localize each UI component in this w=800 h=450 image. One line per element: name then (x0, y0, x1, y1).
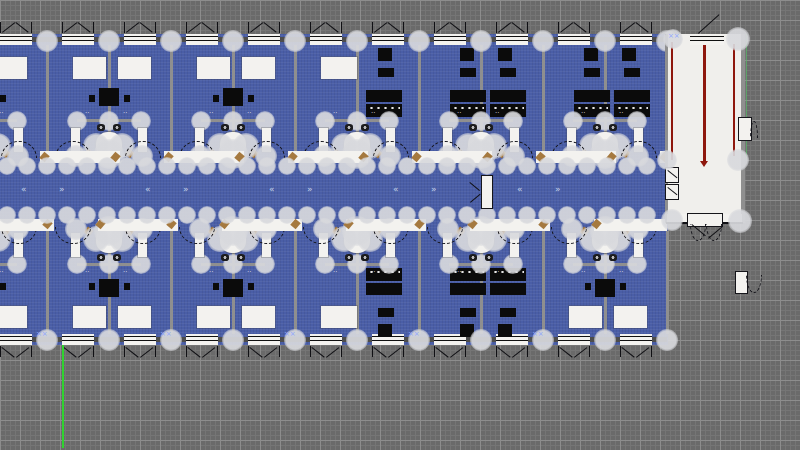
door-leaf-line (497, 347, 510, 358)
chair (0, 95, 6, 102)
unit-mark: ·· (85, 110, 105, 118)
door-leaf-line (622, 22, 635, 33)
unit-mark: ·· (581, 269, 601, 277)
path-node (518, 157, 536, 175)
flow-arrow-right: » (183, 185, 203, 193)
unit-mark: ·· (0, 110, 19, 118)
wall-node (98, 30, 120, 52)
door-leaf-line (140, 347, 153, 358)
chair (89, 283, 95, 290)
sink (97, 254, 105, 261)
door-swing-arc (179, 227, 215, 244)
door-leaf-line (326, 347, 339, 358)
bed (569, 306, 602, 328)
wing-green-edge (746, 34, 747, 160)
wall-node (160, 30, 182, 52)
chair (585, 283, 591, 290)
node-mark: ×× (668, 33, 688, 41)
interior-wall (418, 231, 421, 334)
wall-node (222, 30, 244, 52)
floor-plan-layer: ········································… (0, 0, 800, 450)
y-axis-guide (62, 345, 64, 448)
path-node (18, 157, 36, 175)
door-swing-arc (621, 141, 657, 158)
path-node (98, 206, 116, 224)
door-leaf-line (436, 22, 449, 33)
door-swing-line (698, 14, 719, 33)
path-node (78, 157, 96, 175)
furniture-black (500, 308, 516, 317)
path-node (558, 206, 576, 224)
door-leaf-line (77, 22, 90, 33)
wall-node (656, 329, 678, 351)
path-node (498, 157, 516, 175)
wall-node (657, 150, 677, 170)
door-mark-tick (155, 346, 156, 357)
door-leaf-line (15, 22, 28, 33)
sink (469, 124, 477, 131)
sink (593, 124, 601, 131)
path-node (118, 157, 136, 175)
furniture-black (378, 308, 394, 317)
wall-node (346, 30, 368, 52)
window (434, 34, 466, 45)
stair-rail (671, 42, 673, 160)
door-leaf-line (498, 22, 511, 33)
door-leaf-line (387, 22, 400, 33)
door-mark-tick (31, 22, 32, 33)
furniture-black (614, 90, 650, 102)
door-leaf-line (635, 22, 648, 33)
door-mark-tick (279, 22, 280, 33)
stair-rail (703, 40, 706, 161)
window (372, 34, 404, 45)
window (620, 34, 652, 45)
unit-mark: ·· (581, 110, 601, 118)
table (99, 88, 119, 106)
chair (0, 283, 6, 290)
unit-mark: ·· (247, 269, 267, 277)
chair (89, 95, 95, 102)
door-leaf-line (264, 347, 277, 358)
window (558, 34, 590, 45)
node-circle (439, 254, 459, 274)
table (99, 279, 119, 297)
path-node (538, 157, 556, 175)
door-mark-tick (403, 22, 404, 33)
door-mark-tick (589, 22, 590, 33)
door-leaf-line (188, 22, 201, 33)
door-leaf-line (126, 22, 139, 33)
sink (113, 254, 121, 261)
path-node (198, 206, 216, 224)
path-node (158, 206, 176, 224)
door-leaf-line (621, 347, 634, 358)
path-node (518, 206, 536, 224)
path-node (398, 157, 416, 175)
door-leaf-line (511, 22, 524, 33)
window (248, 334, 280, 345)
path-node (158, 157, 176, 175)
furniture-black (622, 48, 636, 61)
path-node (438, 157, 456, 175)
chair (213, 283, 219, 290)
unit-mark: ·· (209, 269, 229, 277)
flow-arrow-left: « (269, 185, 289, 193)
path-node (418, 157, 436, 175)
interior-wall (542, 231, 545, 334)
window (0, 34, 32, 45)
flow-arrow-left: « (145, 185, 165, 193)
window (124, 34, 156, 45)
door-mark-tick (93, 346, 94, 357)
path-node (438, 206, 456, 224)
unit-mark: ·· (123, 110, 143, 118)
flow-arrow-right: » (307, 185, 327, 193)
door-leaf-line (201, 22, 214, 33)
door-leaf-line (574, 347, 587, 358)
wall-node (470, 30, 492, 52)
sink (609, 124, 617, 131)
interior-wall (294, 231, 297, 334)
path-node (218, 206, 236, 224)
door-mark-tick (341, 22, 342, 33)
node-circle (67, 254, 87, 274)
wall-node (594, 329, 616, 351)
unit-mark: ·· (619, 269, 639, 277)
path-node (378, 206, 396, 224)
stair-arrow-tip (700, 161, 708, 167)
door-swing-arc (125, 141, 161, 158)
unit-mark: ·· (457, 269, 477, 277)
path-node (198, 157, 216, 175)
furniture-black (460, 48, 474, 61)
window (248, 34, 280, 45)
furniture-black (366, 90, 402, 102)
door-leaf-line (64, 22, 77, 33)
flow-arrow-right: » (431, 185, 451, 193)
furniture-black (584, 48, 598, 61)
unit-mark: ·· (85, 269, 105, 277)
chair (248, 283, 254, 290)
path-node (118, 206, 136, 224)
sink (221, 124, 229, 131)
interior-wall (294, 45, 297, 151)
path-node (278, 157, 296, 175)
door-swing-arc (303, 227, 339, 244)
unit-mark: ·· (333, 269, 353, 277)
door-mark-tick (589, 346, 590, 357)
door-leaf-line (16, 347, 29, 358)
interior-wall (542, 45, 545, 151)
flow-arrow-right: » (555, 185, 575, 193)
window (496, 34, 528, 45)
path-node (58, 157, 76, 175)
chair (124, 283, 130, 290)
bed (73, 306, 106, 328)
side-door-swing (750, 121, 758, 138)
sink (361, 254, 369, 261)
sink (237, 124, 245, 131)
sink (97, 124, 105, 131)
door-mark-tick (93, 22, 94, 33)
corridor-door (482, 176, 492, 208)
node-mark: ×× (36, 331, 56, 339)
wall-node (470, 329, 492, 351)
door-leaf-line (636, 347, 649, 358)
furniture-black (490, 90, 526, 102)
door-mark-tick (651, 22, 652, 33)
unit-mark: ·· (495, 110, 515, 118)
interior-wall (46, 231, 49, 334)
window (558, 334, 590, 345)
node-mark: ×× (160, 331, 180, 339)
unit-mark: ·· (247, 110, 267, 118)
interior-wall (46, 45, 49, 151)
path-node (238, 206, 256, 224)
wall-node (222, 329, 244, 351)
window (186, 34, 218, 45)
bed (614, 306, 647, 328)
wall-node (727, 149, 749, 171)
path-node (578, 206, 596, 224)
path-node (618, 206, 636, 224)
door-leaf-line (512, 347, 525, 358)
wall-node (408, 30, 430, 52)
chair (248, 95, 254, 102)
door-mark-tick (403, 346, 404, 357)
path-node (78, 206, 96, 224)
app-window: { "app": { "name": "floor-plan-cad-viewp… (0, 0, 800, 450)
unit-mark: ·· (123, 269, 143, 277)
path-node (258, 157, 276, 175)
sink (609, 254, 617, 261)
path-node (358, 157, 376, 175)
furniture-black (584, 68, 600, 77)
bed (73, 57, 106, 79)
path-node (138, 157, 156, 175)
door-leaf-line (325, 22, 338, 33)
door-swing-arc (427, 227, 463, 244)
door-mark-tick (527, 346, 528, 357)
cad-canvas[interactable]: ········································… (0, 0, 800, 450)
path-node (458, 157, 476, 175)
door-swing-arc (551, 227, 587, 244)
door-mark-tick (217, 22, 218, 33)
node-mark: ×× (284, 331, 304, 339)
wall-node (346, 329, 368, 351)
bed (197, 57, 230, 79)
door-leaf-line (1, 347, 14, 358)
door-leaf-line (312, 22, 325, 33)
door-leaf-line (78, 347, 91, 358)
unit-mark: ·· (457, 110, 477, 118)
furniture-black (624, 68, 640, 77)
door-leaf-line (573, 22, 586, 33)
sink (485, 254, 493, 261)
bed (118, 306, 151, 328)
door-leaf-line (559, 347, 572, 358)
unit-mark: ·· (371, 269, 391, 277)
interior-wall (418, 45, 421, 151)
flow-arrow-right: » (59, 185, 79, 193)
furniture-black (490, 283, 526, 295)
furniture-black (500, 68, 516, 77)
window (620, 334, 652, 345)
door-mark-tick (155, 22, 156, 33)
sink (221, 254, 229, 261)
path-node (218, 157, 236, 175)
furniture-black (366, 283, 402, 295)
path-node (38, 206, 56, 224)
door-leaf-line (388, 347, 401, 358)
path-node (538, 206, 556, 224)
door-leaf-line (263, 22, 276, 33)
door-leaf-line (374, 22, 387, 33)
door-swing-arc (55, 227, 91, 244)
flow-arrow-left: « (393, 185, 413, 193)
bed (118, 57, 151, 79)
path-node (558, 157, 576, 175)
furniture-black (498, 48, 512, 61)
path-node (298, 206, 316, 224)
node-circle (563, 254, 583, 274)
path-node (178, 206, 196, 224)
wall-node (594, 30, 616, 52)
path-node (458, 206, 476, 224)
door-leaf-line (435, 347, 448, 358)
path-node (278, 206, 296, 224)
door-swing-arc (249, 141, 285, 158)
furniture-black (378, 68, 394, 77)
unit-mark: ·· (619, 110, 639, 118)
wall-node (726, 27, 750, 51)
furniture-black (498, 324, 512, 337)
path-node (98, 157, 116, 175)
node-mark: ×× (408, 331, 428, 339)
path-node (418, 206, 436, 224)
door-mark-tick (527, 22, 528, 33)
door-swing-arc (497, 141, 533, 158)
door-leaf-line (125, 347, 138, 358)
chair (213, 95, 219, 102)
wall-node (36, 30, 58, 52)
sink (345, 124, 353, 131)
path-node (318, 206, 336, 224)
door-mark-tick (341, 346, 342, 357)
wall-node (661, 209, 683, 231)
table (223, 88, 243, 106)
door-leaf-line (560, 22, 573, 33)
path-node (638, 157, 656, 175)
path-node (238, 157, 256, 175)
sink (469, 254, 477, 261)
path-node (338, 206, 356, 224)
door-leaf-line (450, 347, 463, 358)
door-leaf-line (373, 347, 386, 358)
entry-door-swing (690, 224, 706, 241)
interior-wall (170, 45, 173, 151)
path-node (478, 157, 496, 175)
bed (321, 57, 357, 79)
sink (113, 124, 121, 131)
wall-node (284, 30, 306, 52)
door-leaf-line (449, 22, 462, 33)
unit-mark: ·· (333, 110, 353, 118)
window (690, 34, 724, 45)
path-node (18, 206, 36, 224)
stair-rail (733, 44, 735, 156)
chair (620, 283, 626, 290)
path-node (598, 157, 616, 175)
door-leaf-line (187, 347, 200, 358)
path-node (398, 206, 416, 224)
interior-wall (666, 231, 669, 334)
furniture-black (460, 68, 476, 77)
unit-mark: ·· (209, 110, 229, 118)
window (62, 34, 94, 45)
path-node (478, 206, 496, 224)
door-mark-tick (217, 346, 218, 357)
path-node (338, 157, 356, 175)
unit-mark: ·· (495, 269, 515, 277)
wall-node (98, 329, 120, 351)
sink (361, 124, 369, 131)
door-leaf-line (311, 347, 324, 358)
path-node (378, 157, 396, 175)
unit-mark: ·· (0, 269, 19, 277)
furniture-black (574, 90, 610, 102)
chair (124, 95, 130, 102)
door-leaf-line (139, 22, 152, 33)
furniture-black (450, 283, 486, 295)
door-leaf-line (250, 22, 263, 33)
node-circle (191, 254, 211, 274)
flow-arrow-left: « (517, 185, 537, 193)
table (223, 279, 243, 297)
path-node (258, 206, 276, 224)
flow-arrow-left: « (21, 185, 41, 193)
door-swing-arc (1, 141, 37, 158)
bed (321, 306, 357, 328)
path-node (318, 157, 336, 175)
path-node (578, 157, 596, 175)
door-leaf-line (63, 347, 76, 358)
interior-wall (170, 231, 173, 334)
door-mark-tick (31, 346, 32, 357)
bed (197, 306, 230, 328)
path-node (138, 206, 156, 224)
sink (345, 254, 353, 261)
path-node (58, 206, 76, 224)
path-node (598, 206, 616, 224)
sink (593, 254, 601, 261)
door-leaf-line (202, 347, 215, 358)
node-mark: ×× (532, 331, 552, 339)
path-node (618, 157, 636, 175)
furniture-black (378, 324, 392, 337)
path-node (358, 206, 376, 224)
bed (242, 57, 275, 79)
door-leaf-line (2, 22, 15, 33)
wall-node (728, 209, 752, 233)
window (0, 334, 32, 345)
window (310, 334, 342, 345)
door-mark-tick (651, 346, 652, 357)
window (62, 334, 94, 345)
door-swing-arc (373, 141, 409, 158)
door-mark-tick (465, 346, 466, 357)
